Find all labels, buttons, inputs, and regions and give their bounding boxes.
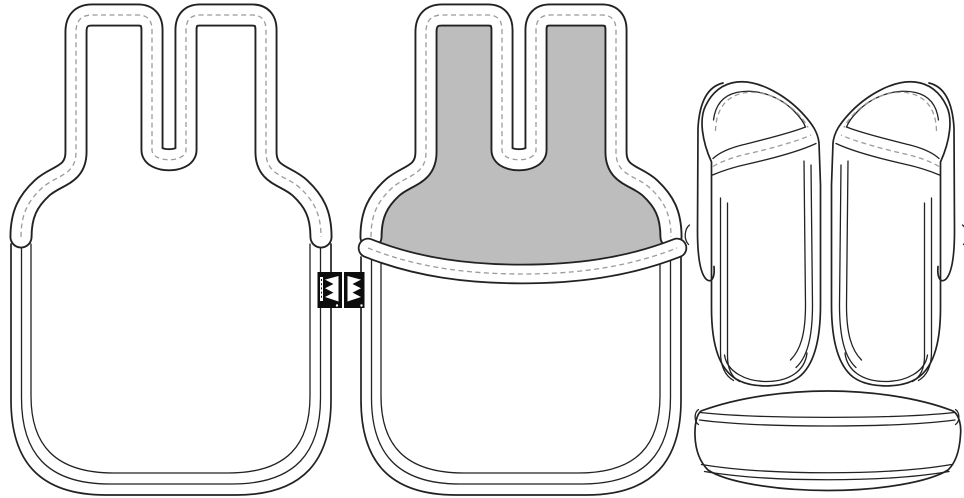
product-line-art bbox=[0, 0, 964, 498]
tag-dot bbox=[360, 304, 362, 306]
brand-tag-front-side bbox=[344, 272, 365, 308]
crown-glyph-icon bbox=[325, 276, 339, 302]
tag-dot bbox=[336, 304, 338, 306]
crown-glyph-icon bbox=[348, 276, 362, 302]
brand-tag-back-side bbox=[318, 272, 343, 308]
product-line-art-canvas bbox=[0, 0, 964, 498]
